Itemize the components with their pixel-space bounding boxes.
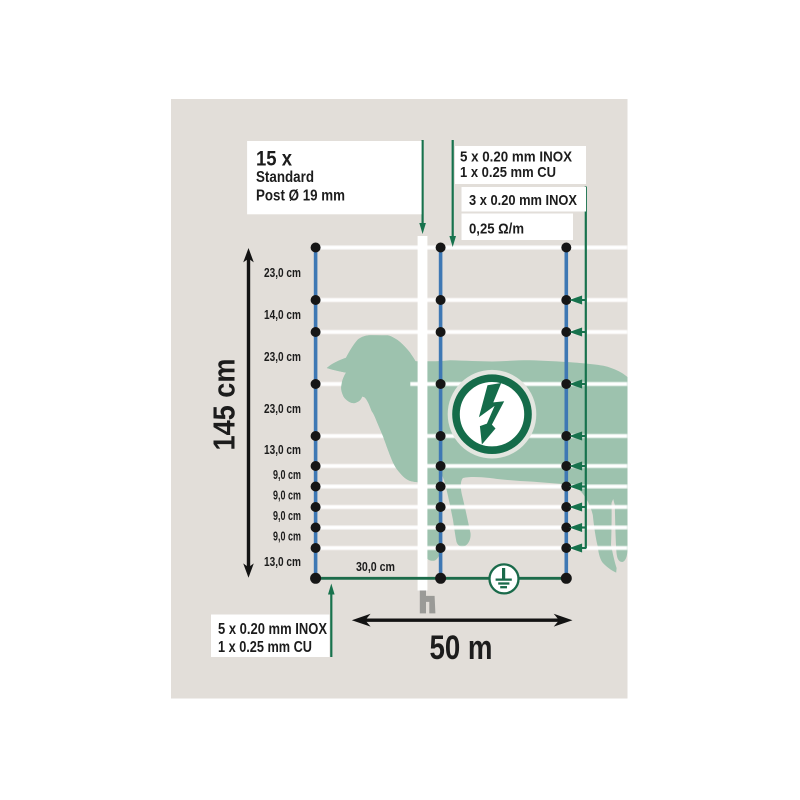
svg-text:9,0 cm: 9,0 cm xyxy=(273,529,301,544)
svg-text:50 m: 50 m xyxy=(430,629,493,667)
svg-text:23,0 cm: 23,0 cm xyxy=(264,349,301,364)
svg-text:1 x 0.25 mm CU: 1 x 0.25 mm CU xyxy=(218,639,312,656)
svg-text:23,0 cm: 23,0 cm xyxy=(264,265,301,280)
svg-text:9,0 cm: 9,0 cm xyxy=(273,467,301,482)
svg-text:15 x: 15 x xyxy=(256,148,292,171)
svg-text:145 cm: 145 cm xyxy=(207,359,242,451)
svg-text:3 x 0.20 mm INOX: 3 x 0.20 mm INOX xyxy=(469,192,577,209)
svg-text:23,0 cm: 23,0 cm xyxy=(264,401,301,416)
svg-text:9,0 cm: 9,0 cm xyxy=(273,488,301,503)
svg-text:0,25 Ω/m: 0,25 Ω/m xyxy=(469,221,524,238)
svg-text:1 x 0.25 mm CU: 1 x 0.25 mm CU xyxy=(460,164,556,181)
svg-text:13,0 cm: 13,0 cm xyxy=(264,554,301,569)
svg-text:9,0 cm: 9,0 cm xyxy=(273,508,301,523)
svg-text:5 x 0.20 mm INOX: 5 x 0.20 mm INOX xyxy=(218,621,328,638)
svg-text:13,0 cm: 13,0 cm xyxy=(264,442,301,457)
svg-text:14,0 cm: 14,0 cm xyxy=(264,307,301,322)
svg-text:Standard: Standard xyxy=(256,169,314,186)
svg-text:30,0 cm: 30,0 cm xyxy=(356,559,395,574)
svg-text:5 x 0.20 mm INOX: 5 x 0.20 mm INOX xyxy=(460,149,572,166)
svg-text:Post Ø 19 mm: Post Ø 19 mm xyxy=(256,188,345,205)
